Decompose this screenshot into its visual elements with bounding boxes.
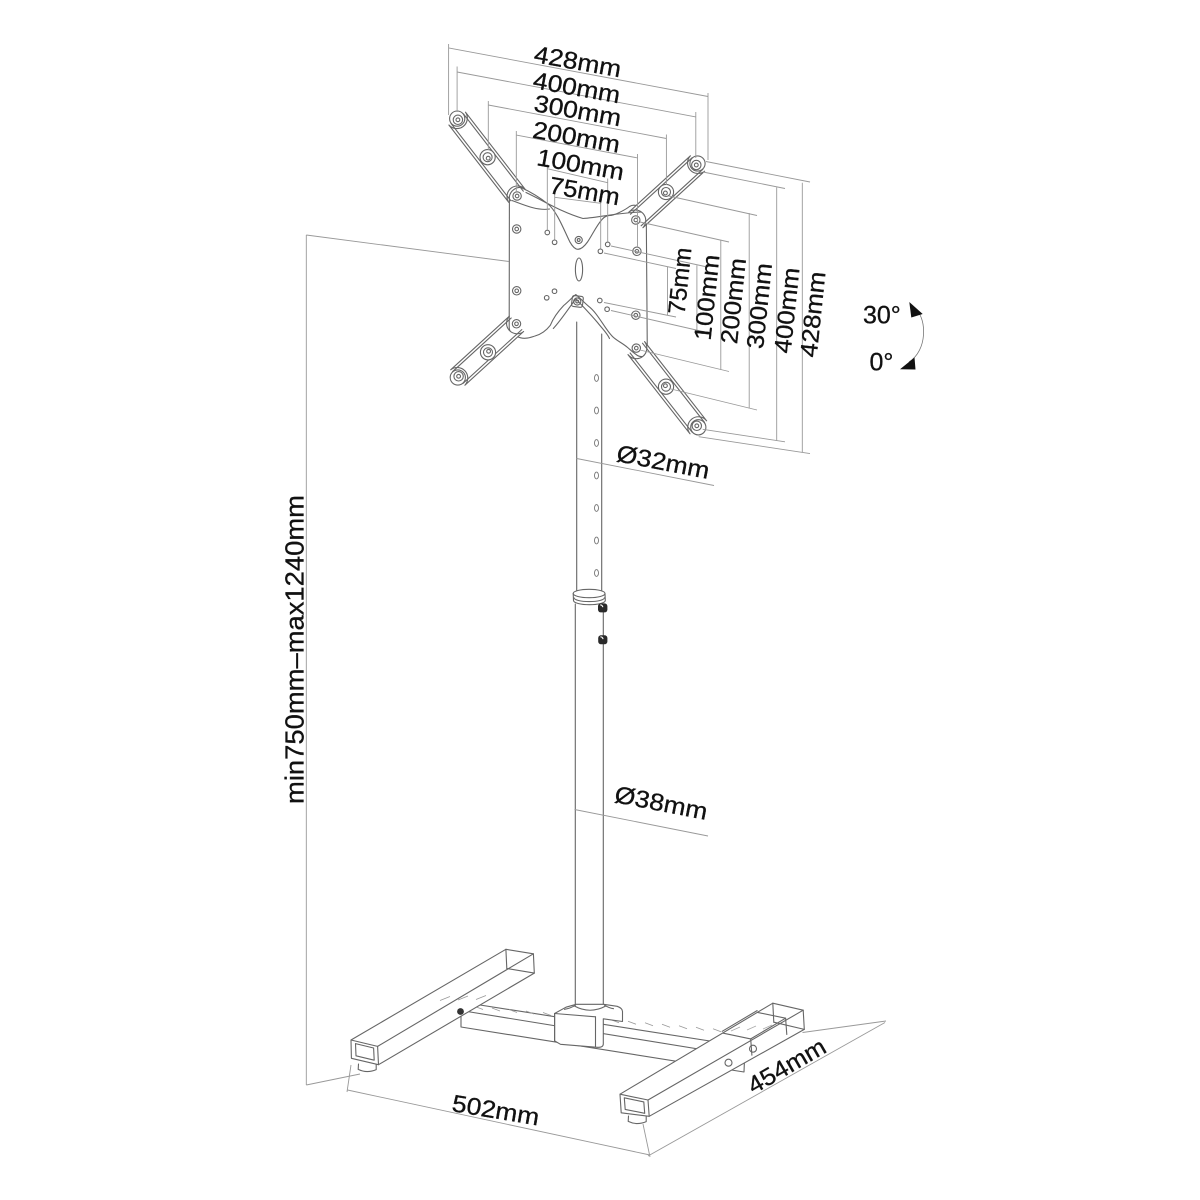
svg-text:30°: 30° [863,302,901,330]
svg-text:0°: 0° [870,349,894,377]
svg-text:min750mm–max1240mm: min750mm–max1240mm [280,495,310,804]
